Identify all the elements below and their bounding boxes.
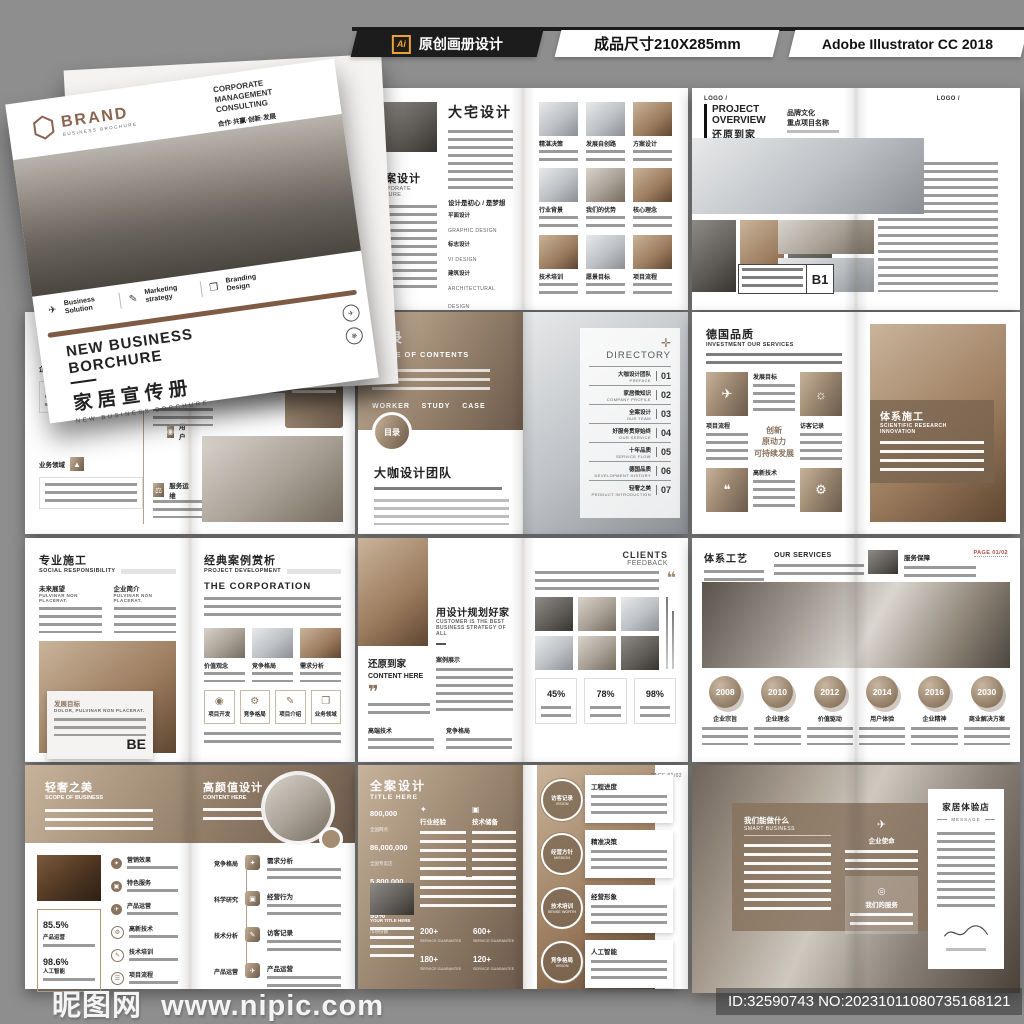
year-item: 2012价值驱动	[807, 676, 853, 745]
record-icon: ✎	[245, 927, 260, 942]
feedback-photo	[621, 636, 659, 670]
watermark-url: www.nipic.com	[161, 990, 384, 1022]
interior-photo	[539, 235, 578, 269]
header-bar: Ai 原创画册设计 成品尺寸210X285mm Adobe Illustrato…	[352, 30, 1024, 57]
timeline-row: 科学研究 ▣ 经营行为	[204, 891, 341, 918]
feedback-photo	[535, 636, 573, 670]
service-item: 平面设计GRAPHIC DESIGN	[448, 211, 513, 237]
layers-icon: ❐	[209, 282, 219, 294]
directory-item: 大咖设计团队PREFACE01	[589, 366, 671, 385]
feature-label: Business Solution	[63, 294, 113, 317]
feedback-photo	[578, 636, 616, 670]
right-subtitle: PROJECT DEVELOPMENT	[204, 568, 281, 574]
spread-table-of-contents: 目录 TABLE OF CONTENTS WORKER STUDY CASE 目…	[358, 312, 688, 534]
software-label: Adobe Illustrator CC 2018	[822, 36, 993, 52]
plus-icon: ✛	[589, 336, 671, 350]
location-pin-icon: ◎	[878, 886, 886, 896]
paper-plane-icon: ✈	[48, 304, 58, 316]
right-title: CLIENTS	[535, 550, 668, 560]
user-icon: ◉	[167, 424, 174, 438]
gallery-cell: 发展自创路	[586, 102, 625, 163]
paper-plane-icon: ✈	[706, 372, 748, 416]
year-circle: 2016	[918, 676, 950, 708]
watermark: 昵图网 www.nipic.com	[52, 982, 384, 1024]
bathroom-hero-photo	[692, 138, 924, 214]
band-subtitle: SCOPE OF BUSINESS	[45, 795, 153, 801]
operation-icon: ✈	[245, 963, 260, 978]
directory-item: 好服务贯穿始终OUR SERVICE04	[589, 423, 671, 442]
interior-photo	[358, 538, 428, 646]
info-card: 工程进度	[585, 775, 673, 823]
living-room-photo	[202, 436, 343, 522]
feature-row: ⚙高新技术	[111, 924, 178, 941]
section-title: 大咖设计团队	[374, 464, 509, 481]
interior-photo	[586, 235, 625, 269]
interior-photo	[633, 102, 672, 136]
subtitle-1: 品牌文化	[787, 108, 839, 118]
spec-table: B1	[738, 264, 834, 294]
info-card: 经营形象	[585, 885, 673, 933]
scale-icon: ⚖	[153, 483, 164, 497]
info-card: 精准决策	[585, 830, 673, 878]
interior-photo	[539, 102, 578, 136]
message-panel: 家居体验店 MESSAGE	[928, 789, 1004, 969]
section-subtitle: CONTENT HERE	[368, 673, 430, 680]
page-subtitle: SOCIAL RESPONSIBILITY	[39, 568, 115, 574]
right-label: 服务保障	[904, 552, 976, 562]
spread-full-case-design: 全案设计 TITLE HERE 800,000全国网点 86,000,000全国…	[358, 765, 688, 989]
ring-badge: 竞争格局VISION	[541, 941, 583, 983]
cell-label: 发展目标	[753, 372, 795, 381]
center-motto: 创新 原动力 可持续发展	[753, 421, 795, 463]
info-card: 人工智能	[585, 940, 673, 988]
quote-icon: ❝	[667, 571, 676, 591]
feature-label: Marketing strategy	[144, 282, 194, 305]
paper-plane-icon: ✈	[877, 819, 886, 831]
asterisk-icon: ❋	[345, 326, 364, 345]
year-item: 2010企业理念	[754, 676, 800, 745]
year-circle: 2010	[761, 676, 793, 708]
stat-box: 78%	[584, 678, 626, 724]
chat-icon: ❝	[706, 468, 748, 512]
hexagon-logo-icon	[31, 114, 56, 141]
page-title: 德国品质	[706, 326, 842, 342]
size-label: 成品尺寸210X285mm	[594, 33, 741, 54]
feature-row: ✈产品运营	[111, 901, 178, 918]
cell-label: 高新技术	[753, 468, 795, 477]
spread-clients-feedback: 用设计规划好家 CUSTOMER IS THE BEST BUSINESS ST…	[358, 538, 688, 762]
feedback-photo	[535, 597, 573, 631]
ring-badge: 访客记录VISION	[541, 779, 583, 821]
timeline-row: 技术分析 ✎ 访客记录	[204, 927, 341, 954]
band-title: 体系施工	[880, 408, 984, 423]
signature	[941, 922, 991, 944]
feature-row: ▣特色服务	[111, 878, 178, 895]
case-photo	[300, 628, 341, 658]
directory-panel: ✛ DIRECTORY 大咖设计团队PREFACE01 家居微知识COMPANY…	[580, 328, 680, 518]
placeholder-text	[448, 130, 513, 190]
spread-classic-cases: 专业施工 SOCIAL RESPONSIBILITY 未来展望PULVINAR …	[25, 538, 355, 762]
directory-item: 全案设计OUR TEAM03	[589, 404, 671, 423]
icon-box: ⚙竞争格局	[240, 690, 271, 724]
case-photo	[252, 628, 293, 658]
ring-badge: 经营方针MISSION	[541, 833, 583, 875]
watermark-site: 昵图网	[52, 990, 142, 1022]
counter: 120+SERVICE GUARANTEE	[473, 949, 520, 971]
band-title: 轻奢之美	[45, 779, 153, 795]
service-item: 建筑设计ARCHITECTURAL DESIGN	[448, 269, 513, 313]
directory-item: 家居微知识COMPANY PROFILE02	[589, 385, 671, 404]
page-title: 全案设计	[370, 777, 511, 794]
quote-icon: ❞	[368, 683, 430, 701]
operations-icon: ✈	[111, 904, 122, 915]
contents-badge: 目录	[372, 412, 412, 452]
year-circle: 2008	[709, 676, 741, 708]
gallery-cell: 行业背景	[539, 168, 578, 229]
leaf-icon: ✦	[420, 805, 466, 814]
interior-photo	[586, 102, 625, 136]
gear-icon: ⚙	[800, 468, 842, 512]
tag-study: STUDY	[422, 403, 451, 410]
icon-box: ◉项目开发	[204, 690, 235, 724]
page-title: 体系工艺	[704, 550, 764, 565]
directory-item: 德国品质DEVELOPMENT HISTORY06	[589, 461, 671, 480]
timeline-row: 竞争格局 ✦ 需求分析	[204, 855, 341, 882]
template-showcase: Ai 原创画册设计 成品尺寸210X285mm Adobe Illustrato…	[0, 0, 1024, 1024]
right-heading: THE CORPORATION	[204, 581, 341, 592]
gallery-cell: 项目流程	[633, 235, 672, 296]
band-subtitle: SCIENTIFIC RESEARCH INNOVATION	[880, 423, 984, 435]
bedroom-photo: 发展目标 DOLOR, PULVINAR NON PLACERAT. BE	[39, 641, 176, 753]
page-title-en: PROJECT OVERVIEW	[712, 104, 782, 126]
year-circle: 2014	[866, 676, 898, 708]
spread-project-overview: LOGO / LOGO / PROJECT OVERVIEW 还原到家 品牌文化…	[692, 88, 1020, 310]
tag-worker: WORKER	[372, 403, 410, 410]
adobe-illustrator-icon: Ai	[392, 34, 411, 53]
page-subtitle: TITLE HERE	[370, 794, 511, 801]
lightbulb-icon: ☼	[800, 372, 842, 416]
gallery-cell: 我们的优势	[586, 168, 625, 229]
slider-bar	[672, 611, 674, 669]
icon-box: ✎项目介绍	[275, 690, 306, 724]
spread-light-luxury: 轻奢之美 SCOPE OF BUSINESS 高颜值设计 CONTENT HER…	[25, 765, 355, 989]
page-title: 大宅设计	[448, 102, 513, 122]
overlay-big-text: BE	[54, 736, 146, 752]
spread-experience-store: 我们能做什么 SMART BUSINESS ✈ 企业使命 ◎ 我们的服务	[692, 765, 1020, 993]
interior-photo	[633, 235, 672, 269]
thumb-photo	[370, 883, 414, 915]
share-icon: ✈	[341, 303, 360, 322]
right-subtitle: FEEDBACK	[535, 560, 668, 567]
mission-label: 企业使命	[845, 835, 918, 845]
panel-title: 家居体验店	[937, 801, 995, 813]
overlay-card: 发展目标 DOLOR, PULVINAR NON PLACERAT. BE	[47, 691, 153, 759]
gallery-cell: 方案设计	[633, 102, 672, 163]
living-room-photo	[778, 220, 874, 254]
counter: 600+SERVICE GUARANTEE	[473, 921, 520, 943]
year-item: 2008企业宗旨	[702, 676, 748, 745]
feature-label: Branding Design	[225, 271, 275, 294]
ring-badge: 技术培训SENSE WORTH	[541, 887, 583, 929]
year-circle: 2030	[971, 676, 1003, 708]
list-label: 案例展示	[436, 655, 513, 664]
interior-photo	[539, 168, 578, 202]
tech-icon: ⚙	[111, 926, 124, 939]
analysis-icon: ✦	[245, 855, 260, 870]
service-card: ◎ 我们的服务	[845, 876, 918, 934]
living-room-hero-photo	[702, 582, 1010, 668]
gallery-cell: 核心理念	[633, 168, 672, 229]
year-circle: 2012	[814, 676, 846, 708]
page-subtitle: CUSTOMER IS THE BEST BUSINESS STRATEGY O…	[436, 619, 516, 637]
timeline-label: 服务运维	[169, 480, 190, 500]
photo-label: YOUR TITLE HERE	[370, 918, 411, 923]
thumb-photo	[868, 550, 898, 574]
page-title: 专业施工	[39, 552, 176, 568]
year-item: 2030商业解决方案	[964, 676, 1010, 745]
pyramid-icon: ▲	[70, 457, 84, 471]
header-title-segment: Ai 原创画册设计	[351, 30, 544, 57]
gear-icon: ⚙	[243, 696, 268, 707]
counter: 180+SERVICE GUARANTEE	[420, 949, 467, 971]
overlay-subtitle: SMART BUSINESS	[744, 826, 831, 836]
overlay-panel: 我们能做什么 SMART BUSINESS ✈ 企业使命 ◎ 我们的服务	[732, 803, 930, 931]
badge-b1: B1	[806, 265, 833, 293]
caption-band: 体系施工 SCIENTIFIC RESEARCH INNOVATION	[870, 400, 994, 483]
slider-bar	[666, 597, 668, 669]
panel-subtitle: MESSAGE	[951, 817, 980, 822]
page-subtitle: OUR SERVICES	[774, 552, 864, 559]
feedback-photo	[578, 597, 616, 631]
list-label: 竞争格局	[446, 726, 512, 735]
stat: 86,000,000全国专卖店	[370, 843, 414, 870]
pencil-icon: ✎	[128, 293, 138, 305]
interior-photo	[586, 168, 625, 202]
chart-icon: ✦	[111, 858, 122, 869]
counter: 200+SERVICE GUARANTEE	[420, 921, 467, 943]
list-label: 高端技术	[368, 726, 434, 735]
section-title: 还原到家	[368, 656, 430, 670]
logo-label: LOGO /	[704, 96, 727, 102]
training-icon: ✎	[111, 949, 124, 962]
circle-dot	[319, 827, 343, 851]
subtitle-2: 重点项目名称	[787, 118, 839, 128]
gallery-cell: 精湛决策	[539, 102, 578, 163]
bedroom-photo	[692, 220, 736, 292]
craftsman-photo	[37, 855, 101, 901]
spread-mansion-design: 全案设计 CORPORATE CULTURE 大宅设计 设计是初心 / 是梦想 …	[358, 88, 688, 310]
image-id-bar: ID:32590743 NO:20231011080735168121	[716, 988, 1022, 1015]
cell-label: 项目流程	[706, 421, 748, 430]
header-software-segment: Adobe Illustrator CC 2018	[789, 30, 1024, 57]
icon-box: ❐业务领域	[311, 690, 342, 724]
person-icon: ◉	[207, 696, 232, 707]
directory-item: 十年品质SERVICE FLOW05	[589, 442, 671, 461]
directory-item: 轻奢之美PRODUCT INTRODUCTION07	[589, 480, 671, 499]
brochure-cover: BRAND BUSINESS BROCHURE CORPORATE MANAGE…	[5, 58, 379, 423]
right-title: 经典案例赏析	[204, 552, 341, 568]
spread-german-quality: 德国品质 INVESTMENT OUR SERVICES ✈ 发展目标 ☼ 项目…	[692, 312, 1020, 534]
gallery-cell: 技术培训	[539, 235, 578, 296]
feature-row: ✦营销效果	[111, 855, 178, 872]
list-title: 设计是初心 / 是梦想	[448, 197, 513, 207]
service-item: 标志设计VI DESIGN	[448, 240, 513, 266]
tag-case: CASE	[462, 403, 485, 410]
cell-label: 访客记录	[800, 421, 842, 430]
header-size-segment: 成品尺寸210X285mm	[555, 30, 780, 57]
service-label: 我们的服务	[850, 899, 913, 909]
image-id-text: ID:32590743 NO:20231011080735168121	[728, 993, 1010, 1010]
header-title: 原创画册设计	[419, 34, 503, 54]
overlay-title: 我们能做什么	[744, 815, 831, 826]
directory-title: DIRECTORY	[589, 350, 671, 361]
case-photo	[204, 628, 245, 658]
page-title: 用设计规划好家	[436, 604, 513, 619]
spread-our-services: 体系工艺 OUR SERVICES 服务保障 PAGE 01/02 2008企业…	[692, 538, 1020, 762]
timeline-label: 业务领域	[39, 459, 65, 469]
service-icon: ▣	[111, 881, 122, 892]
page-number: PAGE 01/02	[974, 550, 1008, 557]
chip-icon: ▣	[472, 805, 516, 814]
research-icon: ▣	[245, 891, 260, 906]
year-item: 2014用户体验	[859, 676, 905, 745]
stat-box: 98%	[634, 678, 676, 724]
stat: 800,000全国网点	[370, 809, 414, 836]
year-item: 2016企业精神	[911, 676, 957, 745]
gallery-cell: 愿景目标	[586, 235, 625, 296]
interior-photo	[633, 168, 672, 202]
pen-icon: ✎	[278, 696, 303, 707]
book-icon: ❐	[314, 696, 339, 707]
stat-box: 85.5% 产品运营 98.6% 人工智能	[37, 909, 101, 992]
feedback-photo	[621, 597, 659, 631]
timeline-card	[39, 477, 143, 509]
feature-row: ✎技术培训	[111, 947, 178, 964]
page-subtitle: INVESTMENT OUR SERVICES	[706, 342, 842, 348]
stat-box: 45%	[535, 678, 577, 724]
